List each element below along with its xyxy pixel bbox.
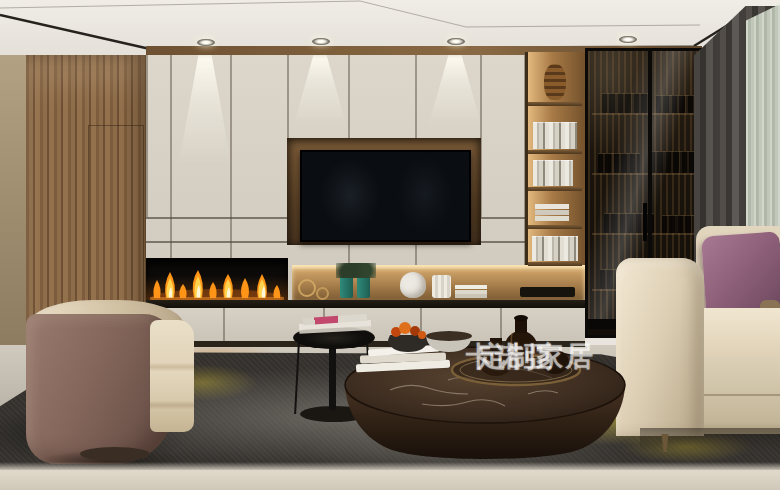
downlight-icon xyxy=(447,38,465,45)
cabinet-seam xyxy=(415,55,417,138)
downlight-wash xyxy=(287,55,353,135)
white-geometric-vase xyxy=(432,275,451,298)
book-stack xyxy=(455,285,487,289)
cabinet-seam xyxy=(230,217,232,258)
cabinet-seam xyxy=(223,308,225,341)
downlight-icon xyxy=(312,38,330,45)
living-room-render: 卡诺亞定制家居 xyxy=(0,0,780,490)
cabinet-seam xyxy=(230,55,232,217)
cabinet-seam xyxy=(146,217,287,219)
shelf-board xyxy=(528,262,582,266)
white-sculpture-vase xyxy=(400,272,426,298)
tv-reflection xyxy=(397,156,452,232)
coffee-table xyxy=(338,302,632,464)
downlight-wash xyxy=(172,55,238,180)
display-niche xyxy=(292,265,585,300)
gold-wire-sphere-icon xyxy=(316,287,329,300)
flower-bowl xyxy=(388,322,428,352)
cabinet-seam xyxy=(480,217,526,219)
downlight-icon xyxy=(619,36,637,43)
tv-screen xyxy=(300,150,471,242)
plant-foliage xyxy=(336,263,376,278)
watermark-tagline: 定制家居 xyxy=(478,338,594,376)
cabinet-seam xyxy=(348,55,350,138)
door-handle xyxy=(643,203,647,241)
cabinet-seam xyxy=(170,55,172,217)
shelf-books xyxy=(532,236,578,261)
armchair-cushion xyxy=(150,320,194,432)
green-vase xyxy=(357,276,370,298)
sofa-base-shadow xyxy=(640,428,780,452)
shelf-board xyxy=(528,225,582,229)
shelf-books xyxy=(533,160,573,186)
gold-wire-sphere-icon xyxy=(298,279,316,297)
green-vase xyxy=(340,276,353,298)
decor-tray xyxy=(520,287,575,297)
downlight-wash xyxy=(422,55,488,135)
fireplace xyxy=(146,258,288,305)
fireplace-flames xyxy=(150,264,284,303)
foreground-ledge xyxy=(0,462,780,490)
bookshelf xyxy=(525,52,591,265)
left-wall-sliver xyxy=(0,55,26,347)
shelf-board xyxy=(528,150,582,154)
shelf-books xyxy=(533,122,577,149)
stacked-books xyxy=(535,204,569,209)
side-table-stem xyxy=(329,344,336,410)
downlight-icon xyxy=(197,39,215,46)
cabinet-seam xyxy=(170,217,172,258)
armchair-plinth xyxy=(80,447,150,461)
bronze-ornament xyxy=(544,64,566,100)
shelf-board xyxy=(528,102,582,106)
shelf-board xyxy=(528,187,582,191)
cabinet-seam xyxy=(146,55,148,217)
tv-reflection xyxy=(320,158,380,232)
